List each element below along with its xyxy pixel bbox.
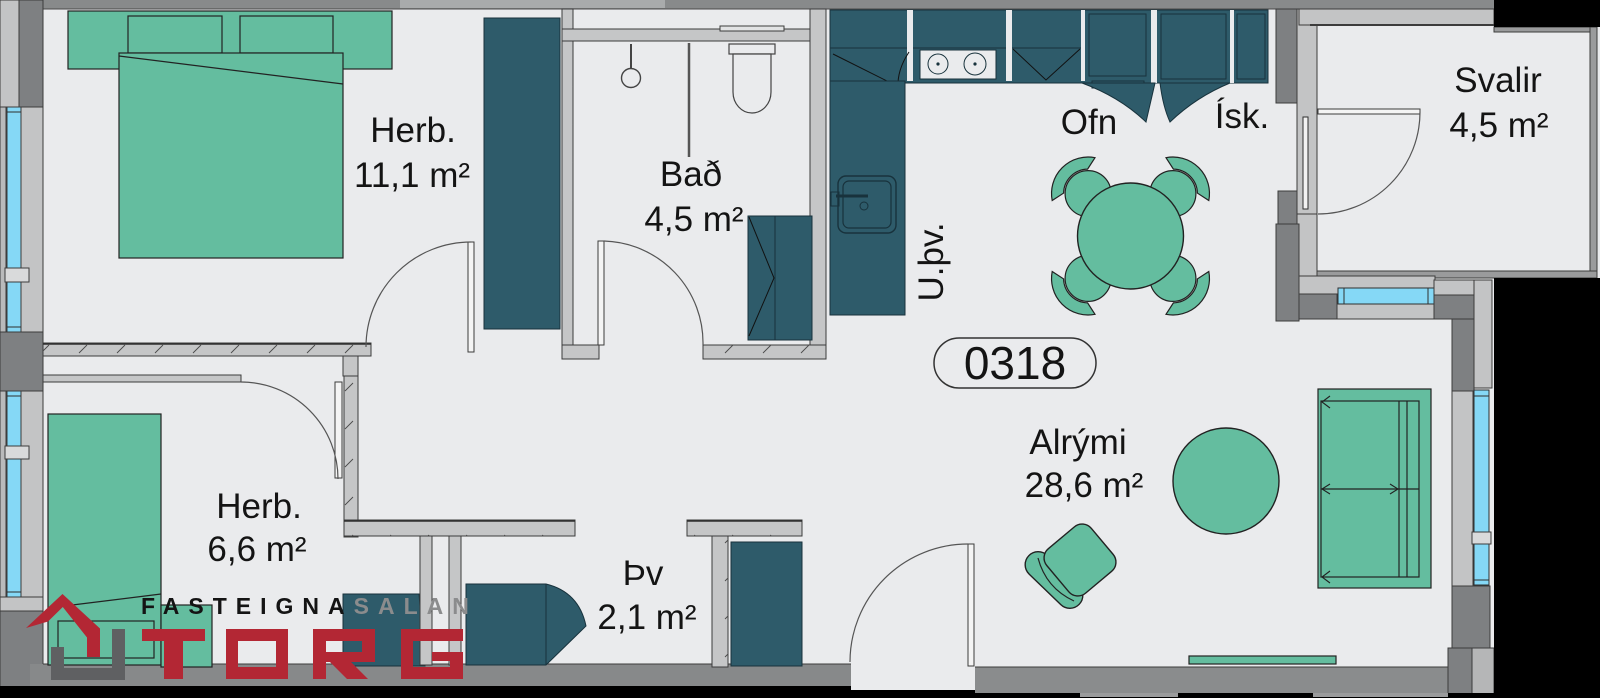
svg-text:0318: 0318 <box>964 337 1066 389</box>
svg-text:Herb.: Herb. <box>370 111 456 150</box>
svg-text:Alrými: Alrými <box>1029 423 1126 462</box>
svg-text:2,1 m²: 2,1 m² <box>597 598 696 637</box>
svg-text:Bað: Bað <box>660 155 722 194</box>
svg-text:Þv: Þv <box>623 554 664 593</box>
svg-text:Herb.: Herb. <box>216 487 302 526</box>
svg-text:28,6 m²: 28,6 m² <box>1025 466 1144 505</box>
svg-text:FASTEIGNASALAN: FASTEIGNASALAN <box>141 593 478 619</box>
svg-text:4,5 m²: 4,5 m² <box>1449 106 1548 145</box>
svg-text:U.þv.: U.þv. <box>912 222 951 301</box>
svg-text:Svalir: Svalir <box>1454 61 1542 100</box>
svg-text:11,1 m²: 11,1 m² <box>354 156 470 195</box>
svg-text:Ofn: Ofn <box>1061 103 1117 142</box>
svg-text:Ísk.: Ísk. <box>1215 97 1269 136</box>
svg-text:6,6 m²: 6,6 m² <box>207 530 306 569</box>
svg-text:4,5 m²: 4,5 m² <box>644 200 743 239</box>
